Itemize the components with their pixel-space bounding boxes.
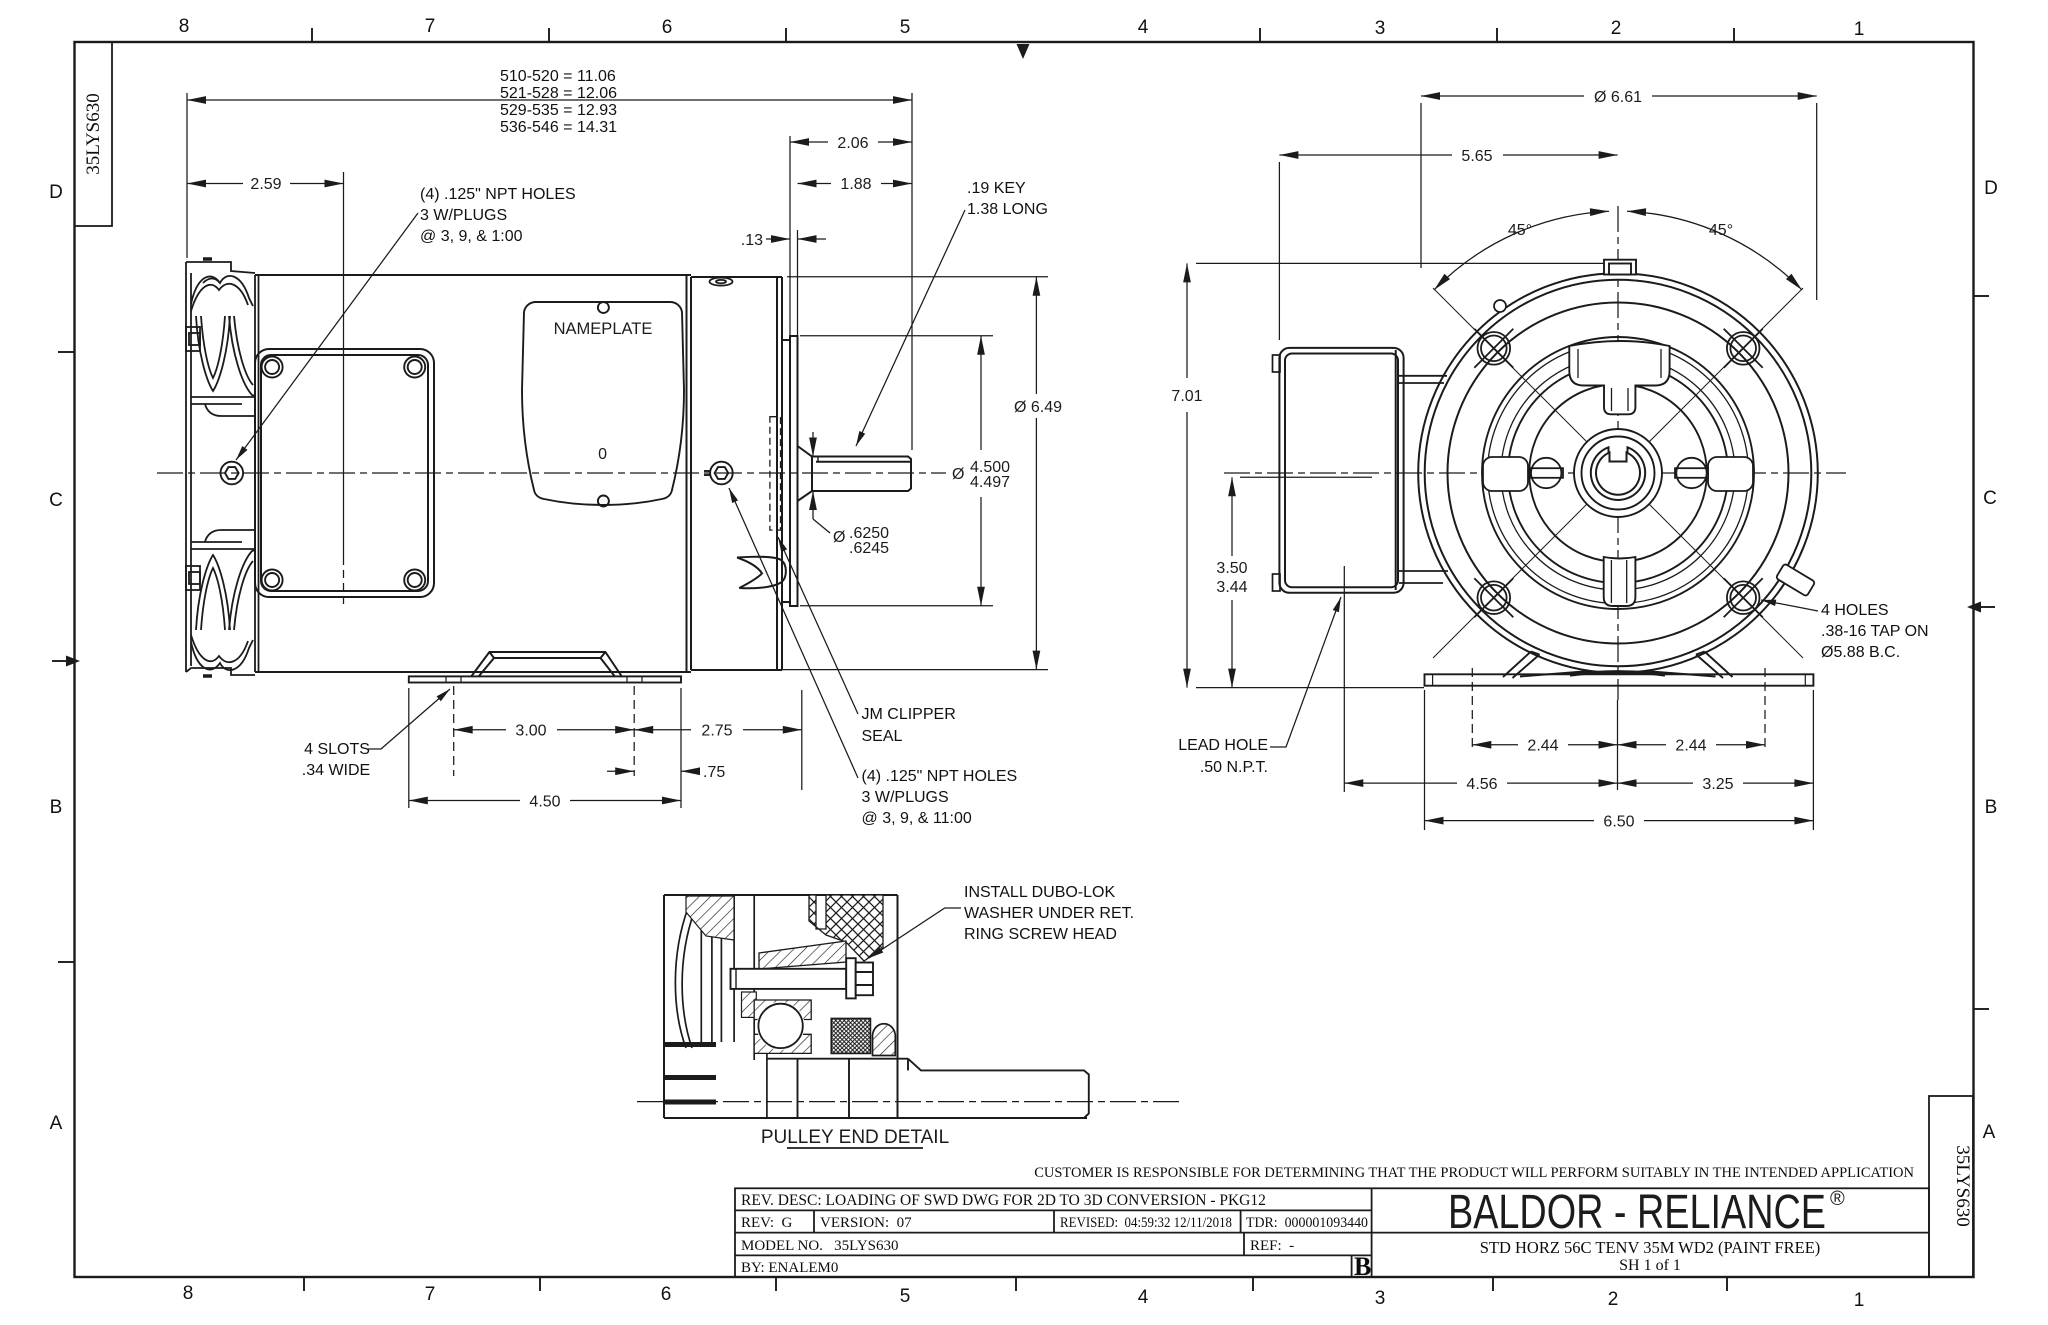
svg-text:8: 8 xyxy=(179,16,190,37)
svg-text:6.50: 6.50 xyxy=(1603,814,1634,831)
svg-text:3 W/PLUGS: 3 W/PLUGS xyxy=(420,207,507,224)
svg-text:2.44: 2.44 xyxy=(1675,738,1706,755)
svg-text:35LYS630: 35LYS630 xyxy=(83,93,104,175)
svg-text:STD HORZ 56C TENV 35M WD2 (PAI: STD HORZ 56C TENV 35M WD2 (PAINT FREE) xyxy=(1480,1238,1821,1257)
svg-text:BALDOR - RELIANCE: BALDOR - RELIANCE xyxy=(1448,1186,1826,1239)
svg-text:.50 N.P.T.: .50 N.P.T. xyxy=(1200,759,1268,776)
svg-text:4 SLOTS: 4 SLOTS xyxy=(304,741,370,758)
svg-text:Ø 6.49: Ø 6.49 xyxy=(1014,399,1062,416)
svg-text:®: ® xyxy=(1830,1188,1845,1210)
svg-text:REVISED: 04:59:32 12/11/2018: REVISED: 04:59:32 12/11/2018 xyxy=(1060,1215,1232,1231)
svg-text:INSTALL DUBO-LOK: INSTALL DUBO-LOK xyxy=(964,884,1115,901)
svg-text:WASHER UNDER RET.: WASHER UNDER RET. xyxy=(964,905,1134,922)
svg-text:D: D xyxy=(1984,178,1998,199)
svg-text:4 HOLES: 4 HOLES xyxy=(1821,602,1889,619)
svg-text:3.00: 3.00 xyxy=(515,723,546,740)
svg-text:Ø: Ø xyxy=(952,466,964,483)
svg-text:1.38 LONG: 1.38 LONG xyxy=(967,201,1048,218)
svg-text:529-535 = 12.93: 529-535 = 12.93 xyxy=(500,102,617,119)
svg-text:.34 WIDE: .34 WIDE xyxy=(302,762,370,779)
svg-text:0: 0 xyxy=(598,446,607,463)
svg-text:B: B xyxy=(50,797,63,818)
svg-text:VERSION: 07: VERSION: 07 xyxy=(820,1215,912,1231)
svg-text:LEAD HOLE: LEAD HOLE xyxy=(1178,737,1268,754)
svg-text:.13: .13 xyxy=(741,232,763,249)
svg-text:B: B xyxy=(1985,797,1998,818)
svg-text:2.59: 2.59 xyxy=(250,176,281,193)
svg-text:1: 1 xyxy=(1854,19,1865,40)
svg-text:D: D xyxy=(49,182,63,203)
svg-text:4: 4 xyxy=(1138,17,1149,38)
svg-text:SEAL: SEAL xyxy=(862,728,903,745)
svg-text:7: 7 xyxy=(425,16,436,37)
svg-text:(4) .125" NPT HOLES: (4) .125" NPT HOLES xyxy=(420,186,576,203)
svg-text:1.88: 1.88 xyxy=(840,176,871,193)
svg-text:.75: .75 xyxy=(703,764,725,781)
svg-text:TDR: 000001093440: TDR: 000001093440 xyxy=(1246,1215,1368,1231)
svg-text:.6245: .6245 xyxy=(849,540,889,557)
svg-text:7: 7 xyxy=(425,1284,436,1305)
svg-text:C: C xyxy=(49,490,63,511)
svg-text:2.06: 2.06 xyxy=(837,135,868,152)
svg-text:6: 6 xyxy=(662,17,673,38)
svg-text:2: 2 xyxy=(1608,1289,1619,1310)
svg-text:5.65: 5.65 xyxy=(1461,148,1492,165)
svg-text:.38-16 TAP ON: .38-16 TAP ON xyxy=(1821,623,1929,640)
svg-text:CUSTOMER IS RESPONSIBLE FOR DE: CUSTOMER IS RESPONSIBLE FOR DETERMINING … xyxy=(1034,1165,1914,1181)
svg-text:7.01: 7.01 xyxy=(1171,388,1202,405)
svg-text:(4) .125" NPT HOLES: (4) .125" NPT HOLES xyxy=(862,768,1018,785)
svg-text:3 W/PLUGS: 3 W/PLUGS xyxy=(862,789,949,806)
svg-text:A: A xyxy=(1983,1122,1996,1143)
svg-text:2: 2 xyxy=(1611,18,1622,39)
svg-text:@ 3, 9, & 1:00: @ 3, 9, & 1:00 xyxy=(420,228,523,245)
svg-text:45°: 45° xyxy=(1508,222,1532,239)
svg-text:1: 1 xyxy=(1854,1290,1865,1311)
svg-text:3.25: 3.25 xyxy=(1702,776,1733,793)
svg-text:2.75: 2.75 xyxy=(701,723,732,740)
svg-text:.19 KEY: .19 KEY xyxy=(967,180,1026,197)
svg-text:Ø5.88 B.C.: Ø5.88 B.C. xyxy=(1821,644,1900,661)
svg-text:C: C xyxy=(1983,488,1997,509)
svg-text:4.497: 4.497 xyxy=(970,474,1010,491)
svg-text:5: 5 xyxy=(900,1286,911,1307)
svg-text:536-546 = 14.31: 536-546 = 14.31 xyxy=(500,119,617,136)
svg-text:BY: ENALEM0: BY: ENALEM0 xyxy=(741,1260,838,1276)
svg-text:35LYS630: 35LYS630 xyxy=(1952,1145,1973,1227)
svg-text:REF: -: REF: - xyxy=(1250,1238,1294,1254)
svg-text:3.44: 3.44 xyxy=(1216,579,1247,596)
svg-text:@ 3, 9, & 11:00: @ 3, 9, & 11:00 xyxy=(862,810,972,827)
svg-text:B: B xyxy=(1354,1252,1371,1281)
svg-text:NAMEPLATE: NAMEPLATE xyxy=(554,320,653,338)
svg-text:PULLEY END DETAIL: PULLEY END DETAIL xyxy=(761,1127,949,1148)
svg-text:45°: 45° xyxy=(1709,222,1733,239)
svg-text:510-520 = 11.06: 510-520 = 11.06 xyxy=(500,68,616,85)
svg-text:Ø: Ø xyxy=(833,529,845,546)
svg-text:5: 5 xyxy=(900,17,911,38)
svg-text:8: 8 xyxy=(183,1283,194,1304)
svg-text:SH 1 of 1: SH 1 of 1 xyxy=(1619,1257,1681,1274)
svg-text:521-528 = 12.06: 521-528 = 12.06 xyxy=(500,85,617,102)
svg-text:REV. DESC: LOADING OF SWD DWG: REV. DESC: LOADING OF SWD DWG FOR 2D TO … xyxy=(741,1192,1266,1209)
svg-text:6: 6 xyxy=(661,1284,672,1305)
svg-text:3: 3 xyxy=(1375,1288,1386,1309)
svg-text:Ø 6.61: Ø 6.61 xyxy=(1594,89,1642,106)
svg-text:JM CLIPPER: JM CLIPPER xyxy=(862,706,956,723)
svg-text:MODEL NO. 35LYS630: MODEL NO. 35LYS630 xyxy=(741,1238,899,1254)
svg-text:3.50: 3.50 xyxy=(1216,560,1247,577)
svg-text:4: 4 xyxy=(1138,1287,1149,1308)
svg-text:4.50: 4.50 xyxy=(529,794,560,811)
svg-text:4.56: 4.56 xyxy=(1466,776,1497,793)
svg-text:A: A xyxy=(50,1113,63,1134)
svg-text:2.44: 2.44 xyxy=(1527,738,1558,755)
svg-text:3: 3 xyxy=(1375,18,1386,39)
svg-text:RING SCREW HEAD: RING SCREW HEAD xyxy=(964,926,1117,943)
svg-text:REV: G: REV: G xyxy=(741,1215,793,1231)
